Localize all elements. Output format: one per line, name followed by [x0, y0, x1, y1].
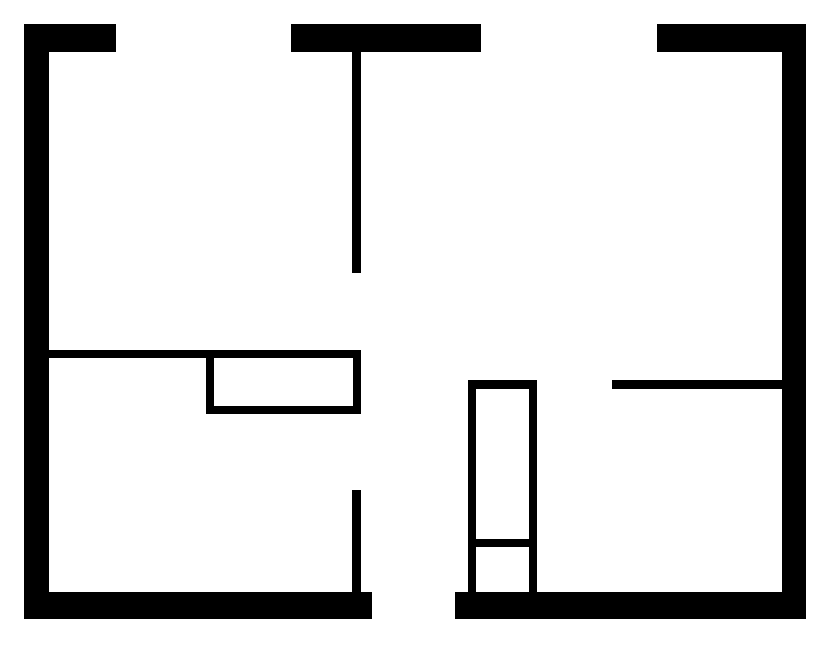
- counter-left-edge: [206, 350, 214, 414]
- left-room-divider-wall: [49, 350, 361, 358]
- left-exterior-wall: [24, 24, 49, 619]
- right-exterior-wall: [782, 24, 806, 619]
- top-wall-segment-middle: [291, 24, 481, 52]
- counter-bottom-edge: [206, 406, 361, 414]
- closet-right-edge: [529, 380, 537, 592]
- center-partition-lower: [352, 490, 361, 592]
- floor-plan-canvas: [0, 0, 835, 646]
- bottom-wall-segment-right: [455, 592, 806, 619]
- closet-top-edge: [468, 380, 537, 389]
- counter-right-edge: [353, 350, 361, 414]
- center-partition-upper: [352, 52, 361, 273]
- closet-shelf-divider: [468, 539, 537, 547]
- bottom-wall-segment-left: [24, 592, 372, 619]
- right-room-wall: [612, 380, 782, 389]
- closet-left-edge: [468, 380, 476, 592]
